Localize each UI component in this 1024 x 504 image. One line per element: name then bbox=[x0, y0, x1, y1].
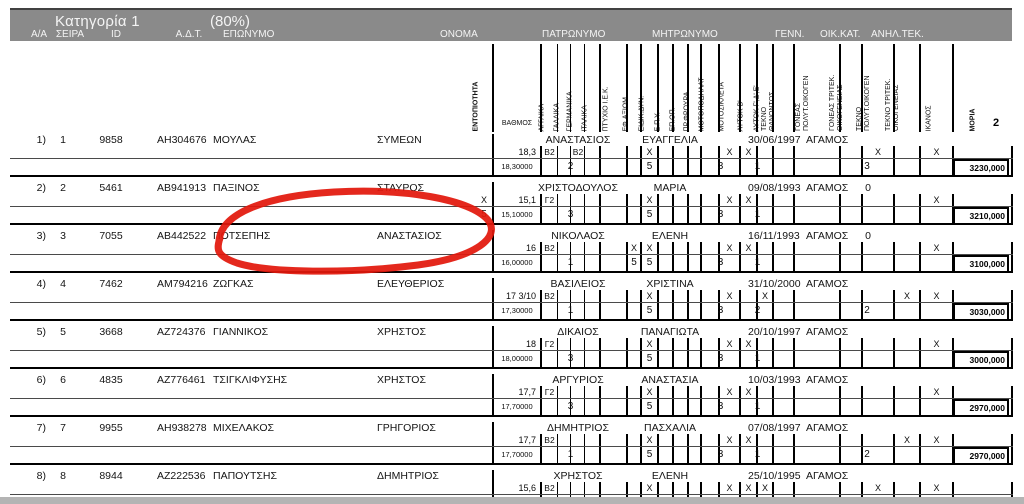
mini-col-label-text: ΓΟΝΕΑΣΠΟΛΥΤ.ΟΙΚΟΓΕΝ bbox=[795, 75, 810, 131]
calc-family: 2 bbox=[837, 304, 897, 317]
cell-oik_kat: ΑΓΑΜΟΣ bbox=[806, 326, 848, 339]
cell-eponymo: ΤΣΙΓΚΛΙΦΥΣΗΣ bbox=[213, 374, 287, 387]
mark-agglika: B2 bbox=[541, 291, 558, 302]
mini-col-label-text: ΓΟΝΕΑΣ ΤΡΙΤΕΚ.ΟΙΚΟΓΕΝΕΙΑΣ bbox=[829, 75, 844, 131]
cell-adt: ΑΗ304676 bbox=[157, 134, 207, 147]
cell-adt: ΑΖ724376 bbox=[157, 326, 205, 339]
mark-motosikleta: X bbox=[719, 291, 740, 302]
mark-vathmos: 17,7 bbox=[493, 435, 536, 446]
mini-col-label-text: ΕΝΤΟΠΙΟΤΗΤΑ bbox=[473, 81, 481, 131]
row-mid-rule bbox=[10, 398, 1013, 399]
mark-motosikleta: X bbox=[719, 435, 740, 446]
table-row: 4)47462ΑΜ794216ΖΩΓΚΑΣΕΛΕΥΘΕΡΙΟΣΒΑΣΙΛΕΙΟΣ… bbox=[0, 276, 1024, 324]
row-bottom-rule bbox=[10, 367, 1013, 369]
table-right-border bbox=[1011, 194, 1013, 223]
mark-agglika: Γ2 bbox=[541, 339, 558, 350]
cell-adt: ΑΒ941913 bbox=[157, 182, 206, 195]
calc-languages: 1 bbox=[541, 304, 601, 317]
calc-family: 3 bbox=[837, 160, 897, 173]
mini-col-label-text: ΤΕΚΝΟ ΤΡΙΤΕΚ.ΟΙΚΟΓΕΝΕΙΑΣ bbox=[885, 79, 900, 131]
cell-mitronymo: ΠΑΣΧΑΛΙΑ bbox=[610, 422, 730, 435]
cell-oik_kat: ΑΓΑΜΟΣ bbox=[806, 422, 848, 435]
mark-aytok_gde: X bbox=[757, 291, 773, 302]
table-header-band: Κατηγορία 1 (80%) Α/ΑΣΕΙΡΑIDΑ.Δ.Τ.ΕΠΩΝΥΜ… bbox=[10, 8, 1012, 41]
calc-languages: 1 bbox=[541, 256, 601, 269]
row-mid-rule bbox=[10, 206, 1013, 207]
cell-onoma: ΕΛΕΥΘΕΡΙΟΣ bbox=[377, 278, 444, 291]
cell-oik_kat: ΑΓΑΜΟΣ bbox=[806, 470, 848, 483]
cell-num: 1) bbox=[18, 134, 46, 147]
calc-eidik_dyn: 5 bbox=[620, 352, 680, 365]
label-line: ΤΕΚΝΟ bbox=[761, 92, 769, 131]
column-divider bbox=[599, 44, 601, 132]
mark-ikanos: X bbox=[920, 339, 953, 350]
cell-oik_kat: ΑΓΑΜΟΣ bbox=[806, 278, 848, 291]
column-divider bbox=[687, 290, 689, 319]
column-divider bbox=[687, 146, 689, 175]
mini-col-label-text: ΤΕΚΝΟΠΟΛΥΤ.ΟΙΚΟΓΕΝ bbox=[856, 75, 871, 131]
table-right-border bbox=[1011, 386, 1013, 415]
cell-seira: 5 bbox=[48, 326, 78, 339]
column-header-4: ΕΠΩΝΥΜΟ bbox=[223, 29, 274, 40]
mark-agglika: B2 bbox=[541, 435, 558, 446]
cell-num: 7) bbox=[18, 422, 46, 435]
mark-tekno_polyt: X bbox=[862, 147, 894, 158]
mini-col-label-text: ΙΤΑΛΙΚΑ bbox=[581, 105, 589, 131]
column-divider bbox=[626, 44, 628, 132]
row-bottom-rule bbox=[10, 319, 1013, 321]
cell-eponymo: ΓΙΑΝΝΙΚΟΣ bbox=[213, 326, 268, 339]
mark-aytok_b: X bbox=[740, 147, 757, 158]
column-divider bbox=[687, 242, 689, 271]
column-divider bbox=[687, 194, 689, 223]
cell-num: 8) bbox=[18, 470, 46, 483]
mark-ikanos: X bbox=[920, 147, 953, 158]
calc-languages: 2 bbox=[541, 160, 601, 173]
cell-mitronymo: ΕΛΕΝΗ bbox=[610, 470, 730, 483]
cell-seira: 7 bbox=[48, 422, 78, 435]
cell-id: 7462 bbox=[88, 278, 134, 291]
cell-oik_kat: ΑΓΑΜΟΣ bbox=[806, 182, 848, 195]
column-divider bbox=[893, 386, 895, 415]
calc-aytok: 1 bbox=[728, 448, 788, 461]
column-divider bbox=[672, 44, 674, 132]
row-mid-rule bbox=[10, 446, 1013, 447]
column-header-5: ΟΝΟΜΑ bbox=[440, 29, 478, 40]
cell-mitronymo: ΜΑΡΙΑ bbox=[610, 182, 730, 195]
mark-ikanos: X bbox=[920, 435, 953, 446]
mark-aytok_b: X bbox=[740, 435, 757, 446]
calc-vathmos: 17,70000 bbox=[487, 400, 547, 413]
label-line: ΓΟΝΕΑΣ bbox=[795, 75, 803, 131]
cell-id: 8944 bbox=[88, 470, 134, 483]
label-line: ΙΚΑΝΟΣ bbox=[925, 105, 933, 131]
cell-eponymo: ΜΙΧΕΛΑΚΟΣ bbox=[213, 422, 274, 435]
column-divider bbox=[793, 434, 795, 463]
cell-oik_kat: ΑΓΑΜΟΣ bbox=[806, 134, 848, 147]
calc-vathmos: 18,30000 bbox=[487, 160, 547, 173]
calc-aytok: 1 bbox=[728, 400, 788, 413]
category-percent: (80%) bbox=[210, 13, 250, 30]
column-divider bbox=[687, 338, 689, 367]
cell-onoma: ΔΗΜΗΤΡΙΟΣ bbox=[377, 470, 439, 483]
column-divider bbox=[919, 44, 921, 132]
table-right-border bbox=[1011, 434, 1013, 463]
column-divider bbox=[861, 194, 863, 223]
column-divider bbox=[793, 194, 795, 223]
mark-vathmos: 18,3 bbox=[493, 147, 536, 158]
column-header-3: Α.Δ.Τ. bbox=[166, 29, 212, 40]
mark-motosikleta: X bbox=[719, 483, 740, 494]
mark-entopiotita: X bbox=[475, 195, 493, 206]
document-page: Κατηγορία 1 (80%) Α/ΑΣΕΙΡΑIDΑ.Δ.Τ.ΕΠΩΝΥΜ… bbox=[0, 0, 1024, 497]
table-row: 2)25461ΑΒ941913ΠΑΞΙΝΟΣΣΤΑΥΡΟΣΧΡΙΣΤΟΔΟΥΛΟ… bbox=[0, 180, 1024, 228]
calc-aytok: 2 bbox=[728, 304, 788, 317]
row-mid-rule bbox=[10, 494, 1013, 495]
calc-aytok: 1 bbox=[728, 160, 788, 173]
cell-anil_tek bbox=[852, 470, 884, 483]
cell-oik_kat: ΑΓΑΜΟΣ bbox=[806, 230, 848, 243]
cell-onoma: ΧΡΗΣΤΟΣ bbox=[377, 326, 426, 339]
cell-num: 2) bbox=[18, 182, 46, 195]
column-divider bbox=[839, 242, 841, 271]
cell-seira: 3 bbox=[48, 230, 78, 243]
column-divider bbox=[657, 44, 659, 132]
mark-ikanos: X bbox=[920, 195, 953, 206]
column-divider bbox=[756, 44, 758, 132]
cell-anil_tek bbox=[852, 134, 884, 147]
column-divider bbox=[861, 44, 863, 132]
cell-eponymo: ΠΑΠΟΥΤΣΗΣ bbox=[213, 470, 277, 483]
mark-ikanos: X bbox=[920, 387, 953, 398]
calc-languages: 3 bbox=[541, 400, 601, 413]
column-divider bbox=[557, 44, 558, 132]
mark-germanika: B2 bbox=[571, 147, 585, 158]
cell-num: 3) bbox=[18, 230, 46, 243]
column-header-6: ΠΑΤΡΩΝΥΜΟ bbox=[542, 29, 605, 40]
label-line: ΓΟΝΕΑΣ ΤΡΙΤΕΚ. bbox=[829, 75, 837, 131]
cell-onoma: ΣΥΜΕΩΝ bbox=[377, 134, 422, 147]
column-divider bbox=[739, 44, 741, 132]
mini-col-label-vathmos: ΒΑΘΜΟΣ bbox=[494, 120, 540, 127]
table-right-border bbox=[1011, 290, 1013, 319]
calc-family: 2 bbox=[837, 448, 897, 461]
column-divider bbox=[893, 44, 895, 132]
mark-ikanos: X bbox=[920, 483, 953, 494]
calc-eidik_dyn: 5 bbox=[620, 448, 680, 461]
cell-onoma: ΧΡΗΣΤΟΣ bbox=[377, 374, 426, 387]
row-bottom-rule bbox=[10, 415, 1013, 417]
cell-eponymo: ΜΟΥΛΑΣ bbox=[213, 134, 256, 147]
cell-eponymo: ΠΟΤΣΕΠΗΣ bbox=[213, 230, 270, 243]
column-divider bbox=[893, 338, 895, 367]
column-header-10: ΑΝΗΛ.ΤΕΚ. bbox=[871, 29, 924, 40]
mini-col-label-text: ΜΟΡΙΑ bbox=[969, 108, 977, 131]
cell-id: 9955 bbox=[88, 422, 134, 435]
mini-col-label-text: ΙΚΑΝΟΣ bbox=[925, 105, 933, 131]
column-divider bbox=[839, 338, 841, 367]
row-bottom-rule bbox=[10, 175, 1013, 177]
column-divider bbox=[700, 44, 702, 132]
cell-id: 5461 bbox=[88, 182, 134, 195]
mark-vathmos: 17 3/10 bbox=[493, 291, 536, 302]
table-row: 6)64835ΑΖ776461ΤΣΙΓΚΛΙΦΥΣΗΣΧΡΗΣΤΟΣΑΡΓΥΡΙ… bbox=[0, 372, 1024, 420]
cell-mitronymo: ΠΑΝΑΓΙΩΤΑ bbox=[610, 326, 730, 339]
cell-eponymo: ΖΩΓΚΑΣ bbox=[213, 278, 254, 291]
row-bottom-rule bbox=[10, 271, 1013, 273]
column-divider bbox=[687, 386, 689, 415]
cell-adt: ΑΒ442522 bbox=[157, 230, 206, 243]
mark-motosikleta: X bbox=[719, 195, 740, 206]
calc-eidik_dyn: 5 bbox=[620, 160, 680, 173]
table-row: 1)19858ΑΗ304676ΜΟΥΛΑΣΣΥΜΕΩΝΑΝΑΣΤΑΣΙΟΣΕΥΑ… bbox=[0, 132, 1024, 180]
mark-eidik_dyn: X bbox=[641, 291, 658, 302]
cell-num: 6) bbox=[18, 374, 46, 387]
column-divider bbox=[640, 44, 642, 132]
cell-id: 3668 bbox=[88, 326, 134, 339]
column-divider bbox=[584, 44, 585, 132]
column-divider bbox=[861, 338, 863, 367]
mark-aytok_b: X bbox=[740, 195, 757, 206]
mark-eidik_dyn: X bbox=[641, 387, 658, 398]
mark-eph_axiom: X bbox=[627, 243, 641, 254]
column-divider bbox=[839, 386, 841, 415]
table-row: 8)88944ΑΖ222536ΠΑΠΟΥΤΣΗΣΔΗΜΗΤΡΙΟΣΧΡΗΣΤΟΣ… bbox=[0, 468, 1024, 497]
cell-anil_tek bbox=[852, 278, 884, 291]
mark-vathmos: 18 bbox=[493, 339, 536, 350]
stray-mark: 2 bbox=[993, 117, 999, 129]
calc-vathmos: 18,00000 bbox=[487, 352, 547, 365]
label-line: ΕΝΤΟΠΙΟΤΗΤΑ bbox=[473, 81, 481, 131]
mark-aytok_b: X bbox=[740, 387, 757, 398]
mark-motosikleta: X bbox=[719, 387, 740, 398]
column-divider bbox=[793, 290, 795, 319]
cell-oik_kat: ΑΓΑΜΟΣ bbox=[806, 374, 848, 387]
cell-seira: 8 bbox=[48, 470, 78, 483]
mark-aytok_b: X bbox=[740, 243, 757, 254]
calc-aytok: 1 bbox=[728, 208, 788, 221]
column-divider bbox=[492, 44, 494, 132]
row-bottom-rule bbox=[10, 463, 1013, 465]
label-line: ΙΤΑΛΙΚΑ bbox=[581, 105, 589, 131]
mark-motosikleta: X bbox=[719, 243, 740, 254]
column-header-0: Α/Α bbox=[26, 29, 52, 40]
label-line: ΜΟΡΙΑ bbox=[969, 108, 977, 131]
cell-eponymo: ΠΑΞΙΝΟΣ bbox=[213, 182, 260, 195]
mark-agglika: B2 bbox=[541, 483, 558, 494]
mark-motosikleta: X bbox=[719, 147, 740, 158]
calc-languages: 1 bbox=[541, 448, 601, 461]
mark-motosikleta: X bbox=[719, 339, 740, 350]
calc-languages: 3 bbox=[541, 352, 601, 365]
calc-vathmos: 17,70000 bbox=[487, 448, 547, 461]
mark-tekno_tritek: X bbox=[894, 291, 920, 302]
row-mid-rule bbox=[10, 158, 1013, 159]
column-header-1: ΣΕΙΡΑ bbox=[52, 29, 88, 40]
column-divider bbox=[772, 44, 774, 132]
mark-aytok_b: X bbox=[740, 339, 757, 350]
mark-eidik_dyn: X bbox=[641, 339, 658, 350]
table-row-circled: 3)37055ΑΒ442522ΠΟΤΣΕΠΗΣΑΝΑΣΤΑΣΙΟΣΝΙΚΟΛΑΟ… bbox=[0, 228, 1024, 276]
mark-aytok_b: X bbox=[740, 483, 757, 494]
cell-num: 5) bbox=[18, 326, 46, 339]
calc-eidik_dyn: 5 bbox=[620, 256, 680, 269]
cell-mitronymo: ΕΥΑΓΓΕΛΙΑ bbox=[610, 134, 730, 147]
column-divider bbox=[793, 386, 795, 415]
mark-eidik_dyn: X bbox=[641, 435, 658, 446]
cell-seira: 6 bbox=[48, 374, 78, 387]
page-bottom-edge bbox=[0, 497, 1024, 504]
cell-seira: 1 bbox=[48, 134, 78, 147]
column-header-7: ΜΗΤΡΩΝΥΜΟ bbox=[652, 29, 718, 40]
mark-ikanos: X bbox=[920, 243, 953, 254]
mark-tekno_polyt: X bbox=[862, 483, 894, 494]
table-row: 5)53668ΑΖ724376ΓΙΑΝΝΙΚΟΣΧΡΗΣΤΟΣΔΙΚΑΙΟΣΠΑ… bbox=[0, 324, 1024, 372]
cell-anil_tek: 0 bbox=[852, 230, 884, 243]
cell-mitronymo: ΧΡΙΣΤΙΝΑ bbox=[610, 278, 730, 291]
cell-anil_tek bbox=[852, 326, 884, 339]
cell-id: 7055 bbox=[88, 230, 134, 243]
column-header-9: ΟΙΚ.ΚΑΤ. bbox=[820, 29, 860, 40]
column-divider bbox=[893, 194, 895, 223]
scanned-ranking-document: { "band": { "title": "Κατηγορία 1", "per… bbox=[0, 0, 1024, 504]
row-mid-rule bbox=[10, 254, 1013, 255]
row-bottom-rule bbox=[10, 223, 1013, 225]
cell-seira: 4 bbox=[48, 278, 78, 291]
cell-anil_tek bbox=[852, 374, 884, 387]
cell-num: 4) bbox=[18, 278, 46, 291]
row-mid-rule bbox=[10, 302, 1013, 303]
mark-tekno_tritek: X bbox=[894, 435, 920, 446]
cell-anil_tek bbox=[852, 422, 884, 435]
row-mid-rule bbox=[10, 350, 1013, 351]
mark-eidik_dyn: X bbox=[641, 195, 658, 206]
label-line: ΤΕΚΝΟ ΤΡΙΤΕΚ. bbox=[885, 79, 893, 131]
mark-aytok_gde: X bbox=[757, 483, 773, 494]
mark-ikanos: X bbox=[920, 291, 953, 302]
cell-onoma: ΑΝΑΣΤΑΣΙΟΣ bbox=[377, 230, 442, 243]
cell-mitronymo: ΑΝΑΣΤΑΣΙΑ bbox=[610, 374, 730, 387]
calc-eidik_dyn: 5 bbox=[620, 208, 680, 221]
cell-id: 9858 bbox=[88, 134, 134, 147]
column-header-2: ID bbox=[96, 29, 136, 40]
column-divider bbox=[839, 194, 841, 223]
column-divider bbox=[540, 44, 542, 132]
mark-eidik_dyn: X bbox=[641, 483, 658, 494]
cell-anil_tek: 0 bbox=[852, 182, 884, 195]
table-right-border bbox=[1011, 338, 1013, 367]
mark-agglika: B2 bbox=[541, 243, 558, 254]
mark-agglika: B2 bbox=[541, 147, 558, 158]
cell-id: 4835 bbox=[88, 374, 134, 387]
cell-adt: ΑΜ794216 bbox=[157, 278, 208, 291]
cell-mitronymo: ΕΛΕΝΗ bbox=[610, 230, 730, 243]
calc-aytok: 1 bbox=[728, 256, 788, 269]
column-header-8: ΓΕΝΝ. bbox=[775, 29, 804, 40]
mark-vathmos: 16 bbox=[493, 243, 536, 254]
calc-vathmos: 17,30000 bbox=[487, 304, 547, 317]
column-divider bbox=[861, 242, 863, 271]
column-divider bbox=[893, 242, 895, 271]
table-right-border bbox=[1011, 242, 1013, 271]
calc-vathmos: 15,10000 bbox=[487, 208, 547, 221]
label-line: ΠΟΛΥΤ.ΟΙΚΟΓΕΝ bbox=[863, 75, 871, 131]
mark-vathmos: 17,7 bbox=[493, 387, 536, 398]
label-line: ΠΟΛΥΤ.ΟΙΚΟΓΕΝ bbox=[802, 75, 810, 131]
cell-adt: ΑΖ776461 bbox=[157, 374, 205, 387]
calc-eidik_dyn: 5 bbox=[620, 400, 680, 413]
calc-vathmos: 16,00000 bbox=[487, 256, 547, 269]
cell-adt: ΑΖ222536 bbox=[157, 470, 205, 483]
column-divider bbox=[570, 44, 571, 132]
column-divider bbox=[793, 146, 795, 175]
mark-vathmos: 15,1 bbox=[493, 195, 536, 206]
cell-adt: ΑΗ938278 bbox=[157, 422, 207, 435]
mark-eidik_dyn: X bbox=[641, 243, 658, 254]
column-divider bbox=[839, 44, 841, 132]
mark-vathmos: 15,6 bbox=[493, 483, 536, 494]
category-title: Κατηγορία 1 bbox=[55, 13, 140, 30]
mark-agglika: Γ2 bbox=[541, 387, 558, 398]
column-divider bbox=[793, 338, 795, 367]
mini-col-label-text: ΠΤΥΧΙΟ Ι.Ε.Κ. bbox=[602, 86, 610, 131]
table-right-border bbox=[1011, 146, 1013, 175]
calc-languages: 3 bbox=[541, 208, 601, 221]
table-row: 7)79955ΑΗ938278ΜΙΧΕΛΑΚΟΣΓΡΗΓΟΡΙΟΣΔΗΜΗΤΡΙ… bbox=[0, 420, 1024, 468]
column-divider bbox=[687, 434, 689, 463]
mark-agglika: Γ2 bbox=[541, 195, 558, 206]
label-line: ΠΤΥΧΙΟ Ι.Ε.Κ. bbox=[602, 86, 610, 131]
cell-seira: 2 bbox=[48, 182, 78, 195]
column-divider bbox=[861, 386, 863, 415]
column-divider bbox=[718, 44, 720, 132]
calc-aytok: 1 bbox=[728, 352, 788, 365]
column-divider bbox=[952, 44, 954, 132]
calc-eidik_dyn: 5 bbox=[620, 304, 680, 317]
column-divider bbox=[793, 44, 795, 132]
column-divider bbox=[793, 242, 795, 271]
cell-onoma: ΣΤΑΥΡΟΣ bbox=[377, 182, 424, 195]
column-divider bbox=[687, 44, 689, 132]
cell-onoma: ΓΡΗΓΟΡΙΟΣ bbox=[377, 422, 436, 435]
mark-eidik_dyn: X bbox=[641, 147, 658, 158]
